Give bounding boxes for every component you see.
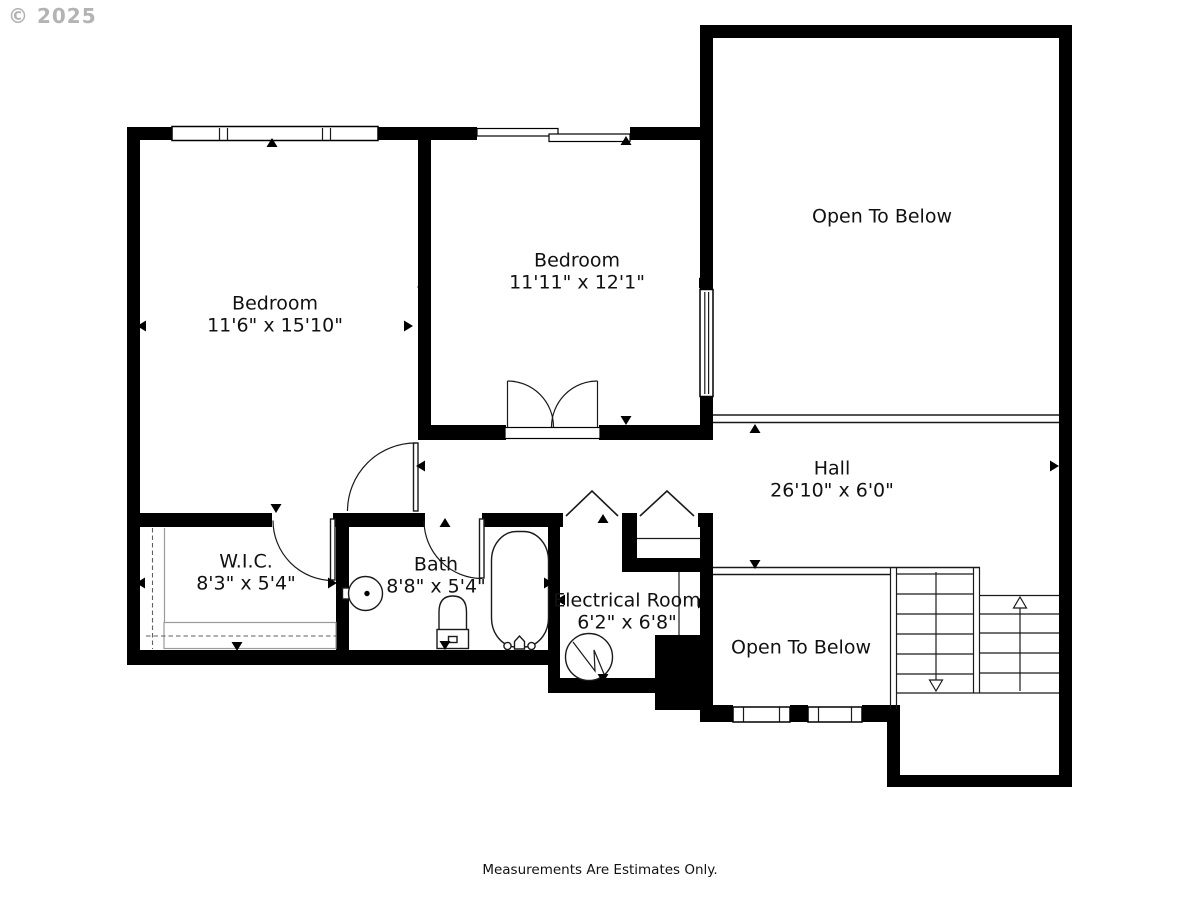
window-bedroom2-top-sliding — [477, 129, 630, 142]
room-dims: 11'11" x 12'1" — [509, 272, 645, 294]
room-label-hall: Hall 26'10" x 6'0" — [770, 459, 894, 502]
room-name: Bedroom — [207, 294, 343, 316]
room-label-open-to-below-top: Open To Below — [812, 206, 952, 228]
room-name: W.I.C. — [196, 552, 296, 574]
window-lower-room-right — [808, 707, 862, 722]
door-bedroom1 — [348, 443, 419, 511]
room-label-open-to-below-bottom: Open To Below — [731, 637, 871, 659]
stairs-up-arrow — [1014, 597, 1027, 691]
stairs — [891, 567, 1060, 709]
room-name: Bath — [386, 555, 486, 577]
measurements-disclaimer: Measurements Are Estimates Only. — [482, 862, 717, 878]
room-label-bedroom-2: Bedroom 11'11" x 12'1" — [509, 251, 645, 294]
room-name: Electrical Room — [553, 591, 700, 613]
room-dims: 8'3" x 5'4" — [196, 573, 296, 595]
window-lower-room-left — [733, 707, 790, 722]
door-bedroom2-double — [505, 381, 600, 439]
floorplan-svg — [0, 0, 1200, 900]
electrical-meter-icon — [566, 634, 613, 681]
room-label-wic: W.I.C. 8'3" x 5'4" — [196, 552, 296, 595]
opening-chevron-right — [640, 491, 694, 516]
room-dims: 8'8" x 5'4" — [386, 576, 486, 598]
window-bedroom1-top — [172, 127, 378, 141]
room-dims: 6'2" x 6'8" — [553, 612, 700, 634]
toilet-icon — [437, 596, 469, 649]
window-bedroom2-right — [700, 290, 713, 397]
room-name: Bedroom — [509, 251, 645, 273]
floorplan-page: © 2025 Bedroom 11'6" x 15'10" Bedroom 11… — [0, 0, 1200, 900]
room-name: Open To Below — [812, 206, 952, 228]
room-label-bedroom-1: Bedroom 11'6" x 15'10" — [207, 294, 343, 337]
opening-chevron-left — [566, 491, 618, 516]
bathtub-icon — [492, 532, 549, 650]
room-name: Hall — [770, 459, 894, 481]
room-label-electrical-room: Electrical Room 6'2" x 6'8" — [553, 591, 700, 634]
copyright-watermark: © 2025 — [8, 4, 97, 28]
stairs-down-arrow — [930, 572, 943, 691]
room-dims: 11'6" x 15'10" — [207, 315, 343, 337]
room-label-bath: Bath 8'8" x 5'4" — [386, 555, 486, 598]
room-dims: 26'10" x 6'0" — [770, 480, 894, 502]
room-name: Open To Below — [731, 637, 871, 659]
